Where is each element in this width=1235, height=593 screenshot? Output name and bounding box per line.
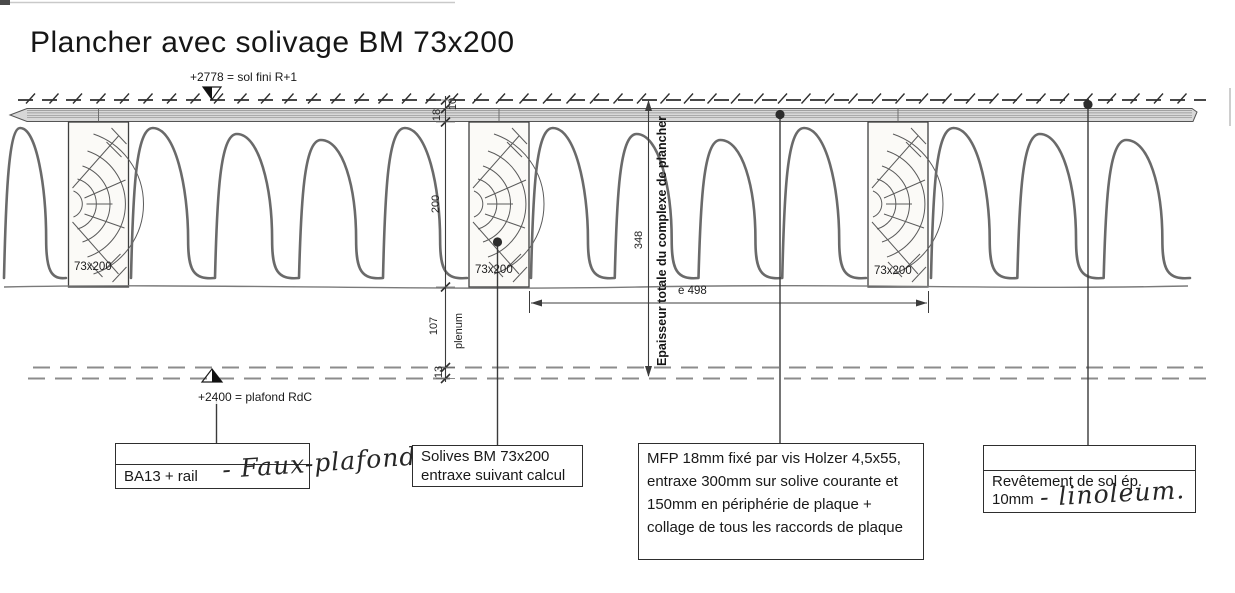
dim-joist-200: 200 (430, 195, 442, 213)
joists-group (69, 122, 944, 287)
drawing-sheet: Plancher avec solivage BM 73x200 +2778 =… (0, 0, 1235, 593)
dim-total-348: 348 (633, 231, 645, 249)
joist-size-label: 73x200 (475, 264, 513, 276)
dim-plenum-107: 107 (428, 317, 440, 335)
dimension-spacing-e498 (530, 291, 929, 313)
callout-mfp-box: MFP 18mm fixé par vis Holzer 4,5x55, ent… (638, 443, 924, 560)
level-annotation-bottom: +2400 = plafond RdC (196, 390, 314, 404)
level-annotation-top: +2778 = sol fini R+1 (188, 70, 299, 84)
dim-spacing-e498: e 498 (678, 285, 707, 297)
joist-size-label: 73x200 (874, 265, 912, 277)
ceiling-dashed-lines (28, 368, 1206, 379)
mfp-board (10, 109, 1197, 159)
note-total-thickness: Epaisseur totale du complexe de plancher (655, 116, 669, 366)
dim-covering-10: 10 (447, 98, 459, 110)
drawing-title: Plancher avec solivage BM 73x200 (30, 26, 515, 60)
floor-covering-layer (18, 94, 1206, 104)
callout-joists-box: Solives BM 73x200 entraxe suivant calcul (412, 445, 583, 487)
callout-mfp-text: MFP 18mm fixé par vis Holzer 4,5x55, ent… (647, 447, 917, 539)
scan-artifacts (0, 0, 1230, 126)
callout-joists-line1: Solives BM 73x200 (421, 448, 549, 465)
dim-board-18: 18 (431, 109, 443, 121)
joist-size-label: 73x200 (74, 261, 112, 273)
callout-joists-line2: entraxe suivant calcul (421, 467, 565, 484)
insulation (4, 128, 1190, 278)
callout-ceiling-text: BA13 + rail (124, 468, 198, 485)
callout-divider (983, 470, 1196, 471)
level-marker-top-icon (203, 87, 221, 100)
insulation-bottom-line (4, 286, 1188, 288)
dim-ceiling-13: 13 (433, 366, 445, 378)
callout-floor-line2: 10mm (992, 491, 1034, 508)
label-plenum: plenum (453, 313, 465, 349)
level-marker-bottom-icon (202, 369, 222, 382)
